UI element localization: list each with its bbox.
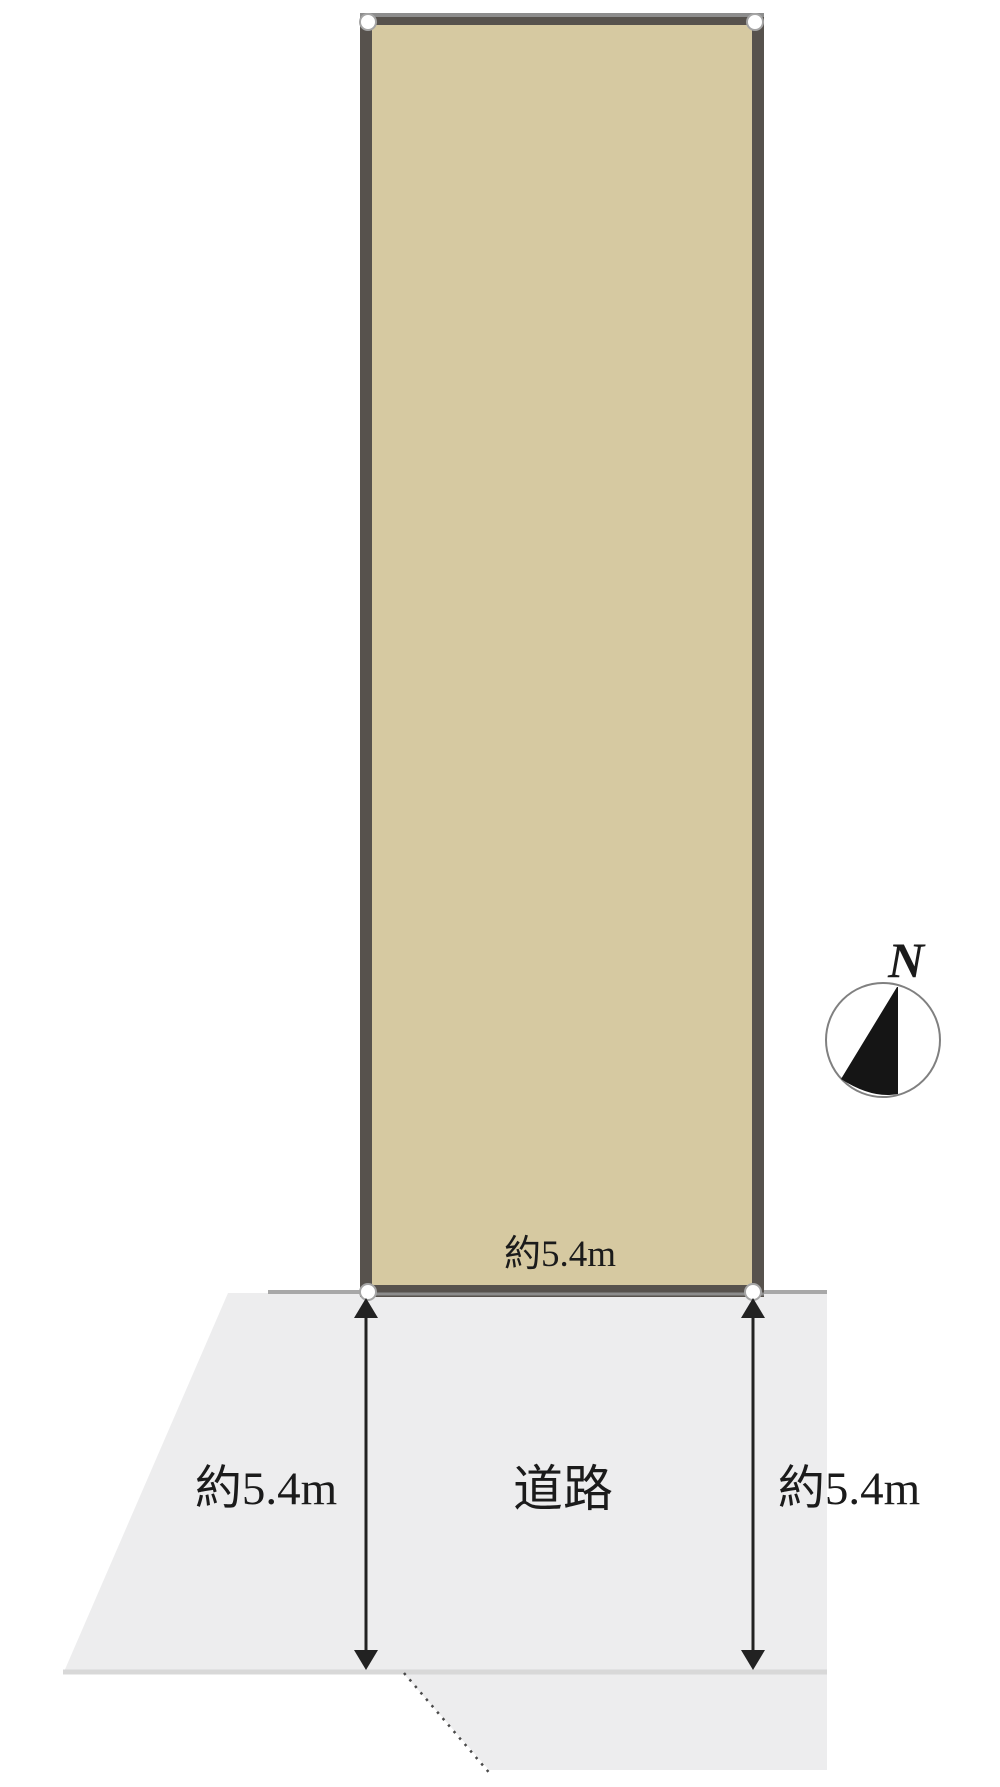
corner-marker-top-right	[747, 14, 763, 30]
north-label: N	[887, 932, 926, 988]
compass-needle	[841, 987, 898, 1095]
road-width-right-label: 約5.4m	[778, 1463, 920, 1515]
corner-marker-bottom-right	[745, 1284, 761, 1300]
corner-marker-bottom-left	[360, 1284, 376, 1300]
parcel	[366, 19, 758, 1291]
plot-diagram-page: N 約5.4m 約5.4m 道路 約5.4m	[0, 0, 1000, 1787]
parcel-frontage-label: 約5.4m	[504, 1233, 616, 1275]
road-width-left-label: 約5.4m	[195, 1463, 337, 1515]
corner-marker-top-left	[360, 14, 376, 30]
road-area	[63, 1293, 827, 1770]
plot-diagram: N 約5.4m 約5.4m 道路 約5.4m	[0, 0, 1000, 1787]
road-label: 道路	[513, 1461, 613, 1517]
compass: N	[826, 932, 940, 1097]
